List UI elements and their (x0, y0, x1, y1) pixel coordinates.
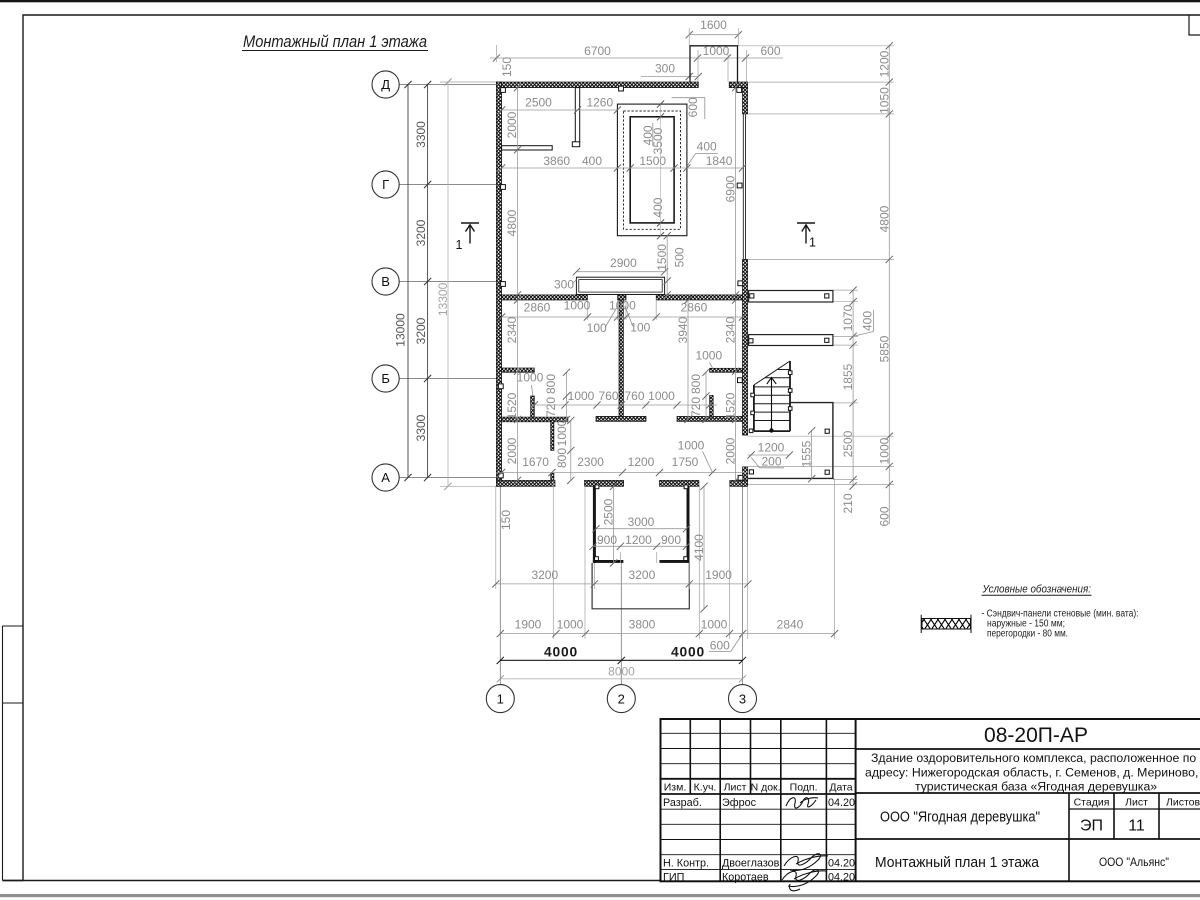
svg-text:4800: 4800 (505, 209, 519, 236)
svg-text:08-20П-АР: 08-20П-АР (984, 723, 1088, 747)
svg-text:1000: 1000 (609, 299, 636, 313)
svg-text:В: В (381, 274, 390, 289)
svg-text:1200: 1200 (758, 441, 785, 455)
svg-text:100: 100 (587, 321, 607, 335)
svg-text:400: 400 (861, 311, 875, 331)
svg-text:Условные обозначения:: Условные обозначения: (982, 584, 1091, 596)
svg-text:600: 600 (710, 639, 730, 653)
svg-text:1000: 1000 (557, 618, 584, 632)
svg-text:Коротаев: Коротаев (722, 871, 769, 883)
svg-text:Монтажный план 1 этажа: Монтажный план 1 этажа (243, 33, 427, 51)
svg-text:600: 600 (877, 506, 891, 526)
svg-text:1070: 1070 (841, 304, 855, 331)
svg-text:13000: 13000 (394, 313, 408, 347)
svg-text:800: 800 (689, 374, 703, 394)
svg-text:Г: Г (382, 177, 389, 192)
svg-text:1600: 1600 (700, 18, 727, 32)
svg-text:Эфрос: Эфрос (722, 797, 757, 809)
svg-text:1900: 1900 (705, 568, 732, 582)
svg-text:4000: 4000 (544, 645, 578, 660)
svg-text:300: 300 (655, 62, 675, 76)
svg-text:2900: 2900 (610, 256, 637, 270)
svg-text:2000: 2000 (505, 437, 519, 464)
svg-text:ГИП: ГИП (663, 871, 684, 883)
svg-text:1000: 1000 (678, 438, 705, 452)
svg-text:1750: 1750 (672, 455, 699, 469)
svg-text:2000: 2000 (724, 437, 738, 464)
svg-text:1670: 1670 (522, 455, 549, 469)
svg-text:150: 150 (500, 57, 514, 77)
svg-text:А: А (381, 470, 390, 485)
svg-text:1000: 1000 (648, 389, 675, 403)
svg-text:1520: 1520 (724, 392, 738, 419)
svg-text:1: 1 (497, 691, 504, 706)
svg-text:600: 600 (686, 97, 700, 117)
svg-text:4100: 4100 (692, 534, 706, 561)
svg-text:2300: 2300 (577, 455, 604, 469)
svg-text:720: 720 (544, 397, 558, 417)
svg-text:3940: 3940 (676, 316, 690, 343)
svg-text:1840: 1840 (706, 154, 733, 168)
svg-text:100: 100 (630, 321, 650, 335)
svg-text:2500: 2500 (841, 430, 855, 457)
svg-text:1500: 1500 (639, 154, 666, 168)
svg-text:4000: 4000 (671, 645, 705, 660)
svg-text:150: 150 (499, 510, 513, 530)
svg-text:1: 1 (456, 238, 463, 252)
svg-text:3300: 3300 (414, 121, 428, 148)
svg-text:Разраб.: Разраб. (663, 797, 702, 809)
svg-text:04.20: 04.20 (828, 797, 855, 809)
svg-text:ООО "Альянс": ООО "Альянс" (1099, 855, 1169, 869)
svg-text:2340: 2340 (505, 316, 519, 343)
svg-text:Б: Б (381, 371, 390, 386)
svg-text:1000: 1000 (517, 371, 544, 385)
svg-text:3200: 3200 (629, 568, 656, 582)
svg-text:Дата: Дата (829, 782, 852, 794)
svg-text:1500: 1500 (655, 244, 669, 271)
svg-text:900: 900 (597, 533, 617, 547)
svg-text:800: 800 (544, 374, 558, 394)
svg-text:3860: 3860 (543, 154, 570, 168)
svg-text:1900: 1900 (515, 618, 542, 632)
svg-text:Двоеглазов: Двоеглазов (722, 857, 780, 869)
svg-text:1200: 1200 (625, 533, 652, 547)
svg-text:1520: 1520 (505, 392, 519, 419)
svg-text:2840: 2840 (777, 618, 804, 632)
svg-text:Здание оздоровительного компле: Здание оздоровительного комплекса, распо… (871, 751, 1196, 765)
svg-text:перегородки - 80 мм.: перегородки - 80 мм. (987, 629, 1068, 640)
svg-text:1000: 1000 (695, 349, 722, 363)
svg-text:8000: 8000 (608, 664, 635, 678)
svg-text:5850: 5850 (877, 335, 891, 362)
svg-text:3800: 3800 (629, 618, 656, 632)
svg-text:400: 400 (582, 154, 602, 168)
svg-text:3200: 3200 (531, 568, 558, 582)
svg-text:11: 11 (1128, 818, 1145, 835)
svg-text:6900: 6900 (724, 175, 738, 202)
svg-text:Подп.: Подп. (790, 782, 818, 794)
svg-text:500: 500 (673, 247, 687, 267)
svg-text:N док.: N док. (751, 782, 781, 794)
svg-text:1000: 1000 (555, 419, 569, 446)
svg-text:1260: 1260 (586, 96, 613, 110)
svg-text:Д: Д (381, 77, 390, 92)
svg-text:720: 720 (689, 397, 703, 417)
svg-text:400: 400 (697, 140, 717, 154)
svg-text:3200: 3200 (414, 219, 428, 246)
svg-text:Лист: Лист (724, 782, 747, 794)
svg-text:760: 760 (624, 389, 644, 403)
svg-text:2: 2 (618, 691, 625, 706)
svg-text:3500: 3500 (651, 127, 665, 154)
svg-text:3200: 3200 (414, 317, 428, 344)
svg-text:1000: 1000 (568, 389, 595, 403)
svg-text:Н. Контр.: Н. Контр. (663, 857, 709, 869)
svg-text:ЭП: ЭП (1080, 818, 1103, 835)
svg-text:1000: 1000 (877, 437, 891, 464)
svg-text:1000: 1000 (701, 618, 728, 632)
svg-text:2860: 2860 (524, 301, 551, 315)
svg-text:200: 200 (761, 454, 781, 468)
svg-text:1555: 1555 (800, 440, 814, 467)
svg-text:1855: 1855 (841, 363, 855, 390)
svg-text:4800: 4800 (877, 205, 891, 232)
svg-text:3300: 3300 (414, 414, 428, 441)
svg-text:04.20: 04.20 (828, 857, 855, 869)
svg-text:900: 900 (661, 533, 681, 547)
svg-text:760: 760 (598, 389, 618, 403)
svg-text:туристическая база «Ягодная де: туристическая база «Ягодная деревушка» (915, 779, 1157, 793)
svg-text:300: 300 (554, 277, 574, 291)
svg-text:К.уч.: К.уч. (694, 782, 717, 794)
svg-text:210: 210 (841, 493, 855, 513)
svg-text:6700: 6700 (584, 44, 611, 58)
svg-text:Листов: Листов (1166, 797, 1200, 809)
svg-text:1050: 1050 (877, 87, 891, 114)
svg-text:Стадия: Стадия (1074, 797, 1110, 809)
svg-text:Монтажный план 1 этажа: Монтажный план 1 этажа (875, 855, 1039, 871)
svg-text:3000: 3000 (628, 515, 655, 529)
svg-text:1200: 1200 (628, 455, 655, 469)
svg-text:1200: 1200 (877, 50, 891, 77)
svg-text:Изм.: Изм. (664, 782, 687, 794)
svg-text:2500: 2500 (602, 498, 616, 525)
svg-text:2340: 2340 (724, 316, 738, 343)
svg-text:2000: 2000 (505, 111, 519, 138)
svg-text:3: 3 (739, 691, 746, 706)
svg-text:800: 800 (555, 448, 569, 468)
svg-text:04.20: 04.20 (828, 871, 855, 883)
svg-text:1000: 1000 (564, 299, 591, 313)
svg-text:Лист: Лист (1125, 797, 1148, 809)
svg-text:400: 400 (651, 197, 665, 217)
svg-text:2500: 2500 (525, 96, 552, 110)
svg-text:ООО "Ягодная деревушка": ООО "Ягодная деревушка" (880, 809, 1040, 825)
svg-text:13300: 13300 (436, 282, 450, 316)
svg-text:1: 1 (809, 236, 816, 250)
svg-text:адресу: Нижегородская область,: адресу: Нижегородская область, г. Семено… (865, 765, 1198, 779)
